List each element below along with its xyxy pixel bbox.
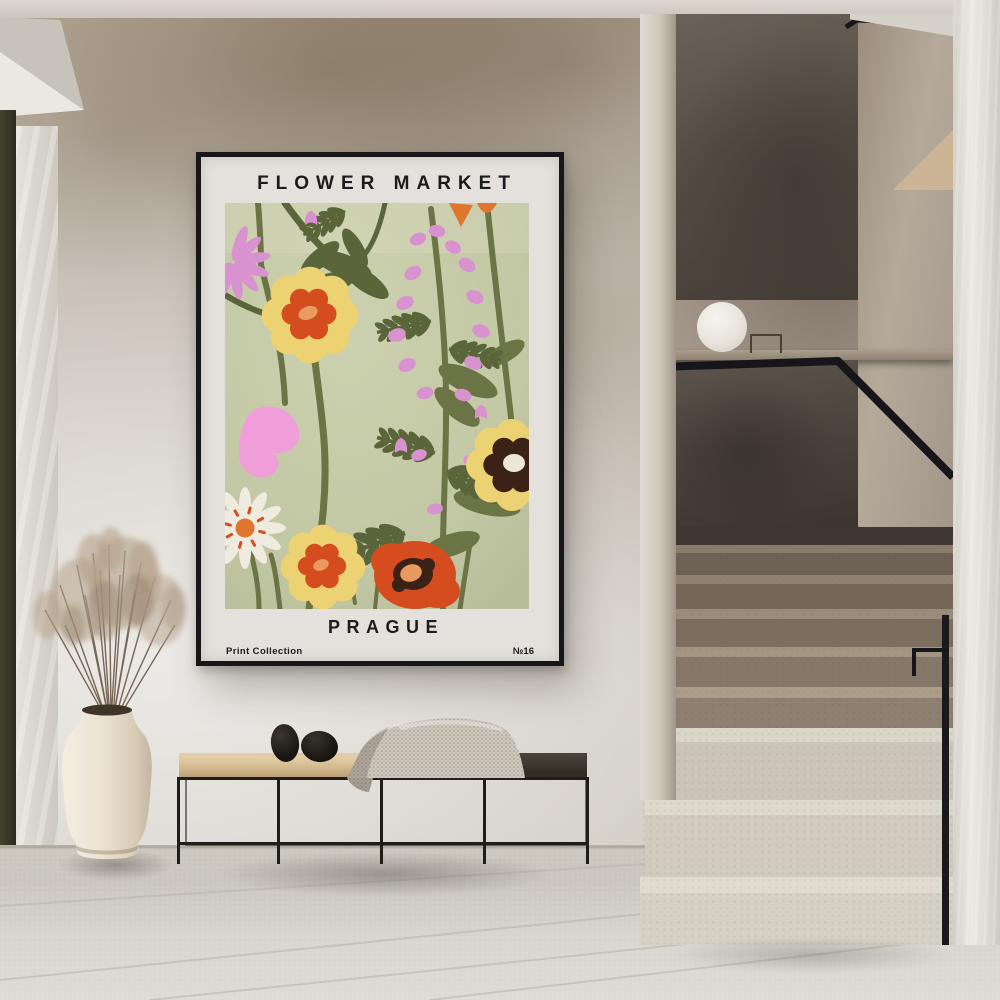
- poster-city: PRAGUE: [201, 617, 559, 638]
- interior-scene: FLOWER MARKET: [0, 0, 1000, 1000]
- nook-left-reveal: [640, 14, 676, 800]
- right-wall-column: [953, 0, 1000, 945]
- bench-foot: [586, 843, 589, 864]
- bench-foot: [177, 843, 180, 864]
- bench-frame-divider: [277, 777, 280, 845]
- handrail: [640, 14, 953, 945]
- ceramic-vase: [62, 686, 152, 860]
- bench-foot: [277, 843, 280, 864]
- yellow-flower-b: [281, 525, 366, 609]
- bench-foot: [380, 843, 383, 864]
- yellow-flower-a: [262, 267, 359, 364]
- poster-title: FLOWER MARKET: [201, 173, 559, 195]
- poster-edition-number: №16: [513, 646, 534, 657]
- metal-bench: [177, 750, 589, 866]
- poster-collection-label: Print Collection: [226, 646, 303, 657]
- stair-floor-shadow: [620, 930, 1000, 980]
- poster-mat: FLOWER MARKET: [201, 157, 559, 661]
- door-frame: [0, 110, 16, 850]
- bench-foot: [483, 843, 486, 864]
- staircase-nook: [640, 14, 953, 945]
- door-glass: [16, 126, 58, 848]
- throw-blanket: [337, 710, 537, 794]
- poster-artwork: [225, 203, 529, 609]
- framed-poster: FLOWER MARKET: [196, 152, 564, 666]
